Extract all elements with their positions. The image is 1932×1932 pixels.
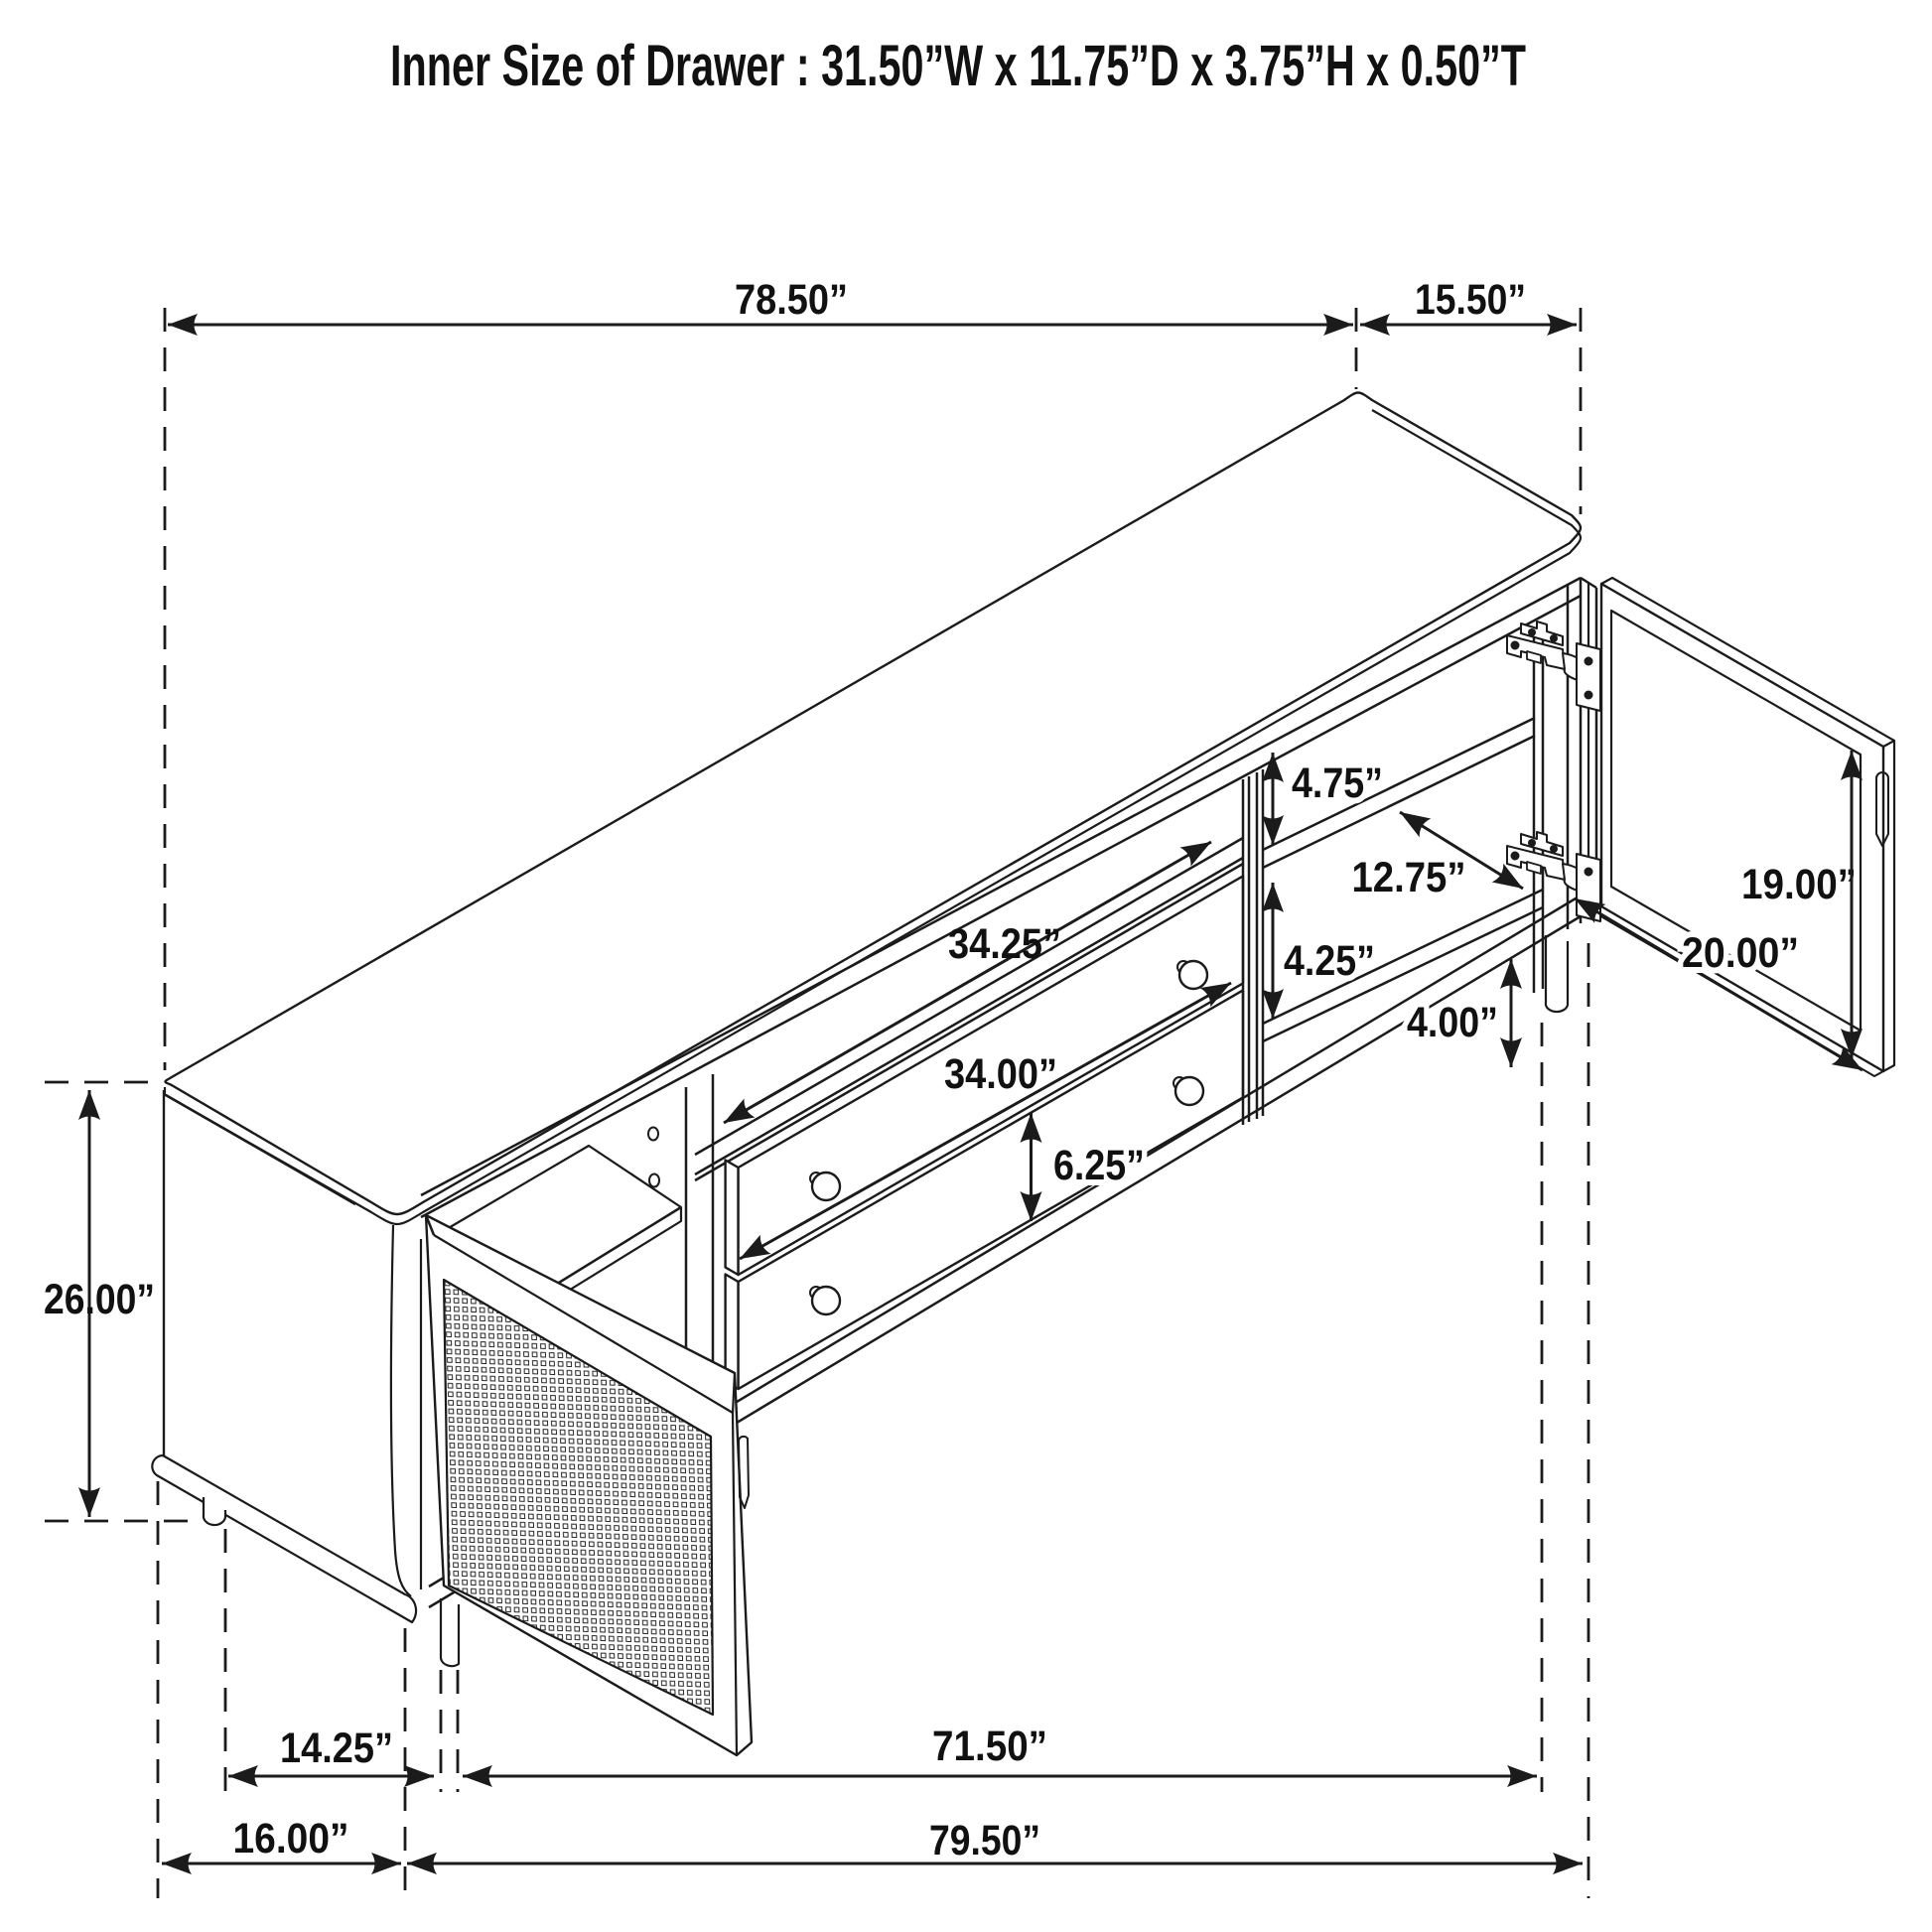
svg-text:14.25”: 14.25” bbox=[280, 1725, 393, 1772]
svg-text:34.00”: 34.00” bbox=[944, 1050, 1057, 1098]
svg-text:79.50”: 79.50” bbox=[929, 1817, 1040, 1864]
svg-text:34.25”: 34.25” bbox=[948, 920, 1061, 968]
svg-text:12.75”: 12.75” bbox=[1352, 854, 1466, 901]
svg-text:6.25”: 6.25” bbox=[1053, 1142, 1145, 1189]
svg-text:26.00”: 26.00” bbox=[44, 1276, 155, 1323]
svg-text:16.00”: 16.00” bbox=[233, 1815, 349, 1863]
svg-text:15.50”: 15.50” bbox=[1415, 276, 1526, 324]
svg-text:78.50”: 78.50” bbox=[735, 276, 848, 324]
svg-text:4.25”: 4.25” bbox=[1284, 937, 1375, 985]
svg-text:4.75”: 4.75” bbox=[1292, 759, 1383, 807]
svg-text:19.00”: 19.00” bbox=[1741, 861, 1857, 908]
svg-text:4.00”: 4.00” bbox=[1407, 999, 1498, 1046]
svg-text:20.00”: 20.00” bbox=[1682, 929, 1799, 977]
svg-text:71.50”: 71.50” bbox=[932, 1723, 1047, 1770]
svg-text:Inner Size of Drawer : 31.50”W: Inner Size of Drawer : 31.50”W x 11.75”D… bbox=[390, 34, 1526, 98]
